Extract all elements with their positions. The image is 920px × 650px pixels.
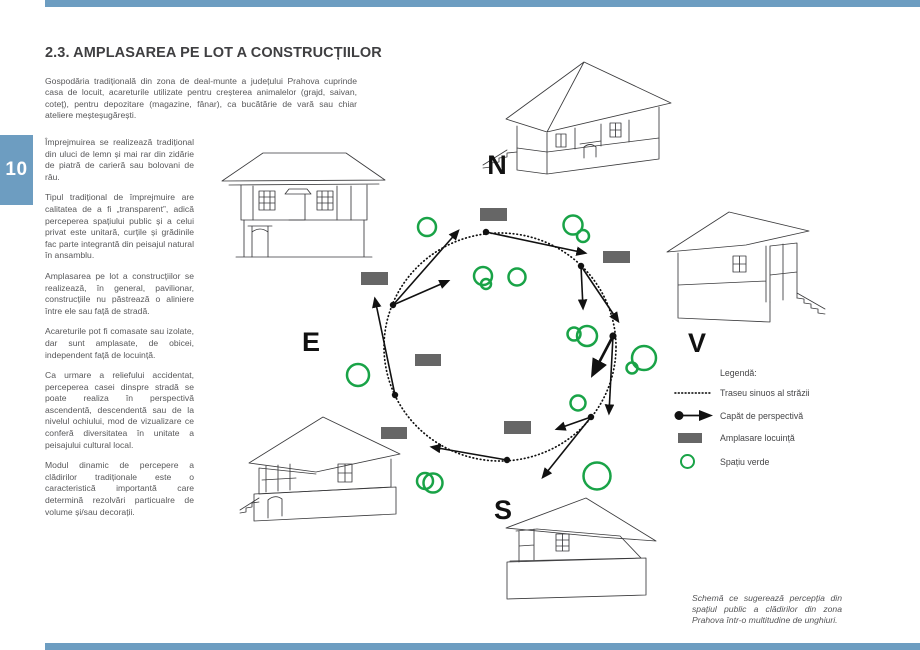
dwelling-rect (480, 208, 507, 221)
legend-item-perspective: Capăt de perspectivă (673, 409, 853, 422)
legend-label: Amplasare locuință (720, 433, 795, 443)
dotted-line-icon (673, 389, 720, 397)
compass-label-north: N (482, 152, 512, 179)
dwelling-rect (603, 251, 630, 263)
green-space-circle (632, 346, 656, 370)
legend-label: Traseu sinuos al străzii (720, 388, 810, 398)
site-placement-diagram (0, 0, 920, 650)
green-space-circle (474, 267, 492, 285)
compass-label-south: S (488, 497, 518, 524)
green-space-circle (418, 218, 436, 236)
green-space-circle (571, 396, 586, 411)
dwelling-rect (504, 421, 531, 434)
dwelling-rects (361, 208, 630, 439)
house-sketch-south (506, 498, 656, 599)
green-space-circle (584, 463, 611, 490)
green-space-circle (577, 230, 589, 242)
legend-label: Capăt de perspectivă (720, 411, 803, 421)
legend-item-dwelling: Amplasare locuință (673, 433, 853, 443)
document-page: 10 2.3. AMPLASAREA PE LOT A CONSTRUCȚIIL… (0, 0, 920, 650)
figure-caption: Schemă ce sugerează percepția din spațiu… (692, 593, 842, 626)
house-sketch-southwest (240, 417, 400, 521)
house-sketch-west (667, 212, 825, 322)
legend: Legendă: Traseu sinuos al străzii Capăt … (673, 368, 853, 480)
dwelling-rect-icon (673, 433, 720, 443)
green-space-circle (347, 364, 369, 386)
house-sketch-east (222, 153, 385, 257)
legend-item-street: Traseu sinuos al străzii (673, 388, 853, 398)
compass-label-east: E (296, 329, 326, 356)
legend-label: Spațiu verde (720, 457, 769, 467)
dwelling-rect (381, 427, 407, 439)
compass-label-west: V (682, 330, 712, 357)
dwelling-rect (415, 354, 441, 366)
legend-item-green: Spațiu verde (673, 454, 853, 469)
dwelling-rect (361, 272, 388, 285)
green-circle-icon (673, 454, 720, 469)
green-space-circle (509, 269, 526, 286)
perspective-arrow-icon (673, 409, 720, 422)
legend-title: Legendă: (720, 368, 853, 378)
